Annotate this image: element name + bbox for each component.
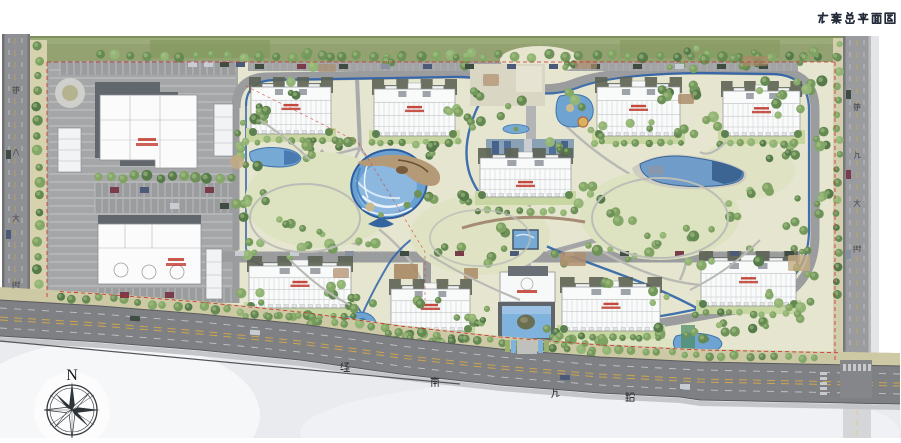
svg-text:N: N — [66, 367, 78, 384]
